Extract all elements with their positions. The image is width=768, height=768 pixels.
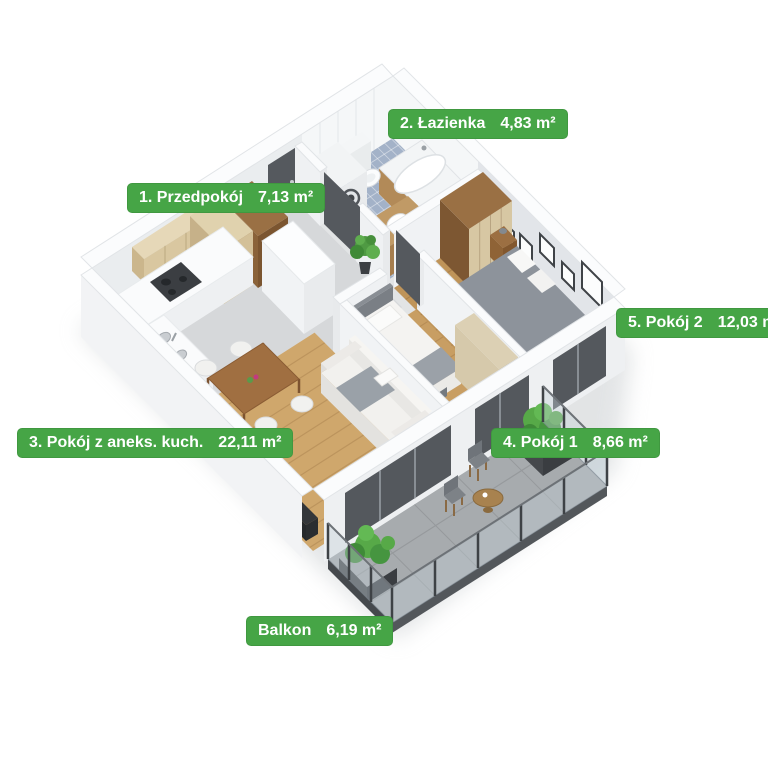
room-label-name: 1. Przedpokój (139, 190, 243, 206)
room-label-area: 6,19 m² (326, 623, 381, 639)
room-label-area: 4,83 m² (500, 116, 555, 132)
room-label-pokoj-1: 4. Pokój 1 8,66 m² (491, 428, 660, 458)
room-label-area: 8,66 m² (593, 435, 648, 451)
room-label-name: 4. Pokój 1 (503, 435, 578, 451)
room-label-lazienka: 2. Łazienka 4,83 m² (388, 109, 568, 139)
room-label-name: Balkon (258, 623, 311, 639)
room-label-name: 5. Pokój 2 (628, 315, 703, 331)
floor-plan-3d-render (0, 0, 768, 768)
room-label-pokoj-z-aneksem: 3. Pokój z aneks. kuch. 22,11 m² (17, 428, 293, 458)
room-label-pokoj-2: 5. Pokój 2 12,03 m² (616, 308, 768, 338)
room-label-area: 7,13 m² (258, 190, 313, 206)
room-label-name: 3. Pokój z aneks. kuch. (29, 435, 203, 451)
floor-plan-page: 1. Przedpokój 7,13 m² 2. Łazienka 4,83 m… (0, 0, 768, 768)
room-label-przedpokoj: 1. Przedpokój 7,13 m² (127, 183, 325, 213)
room-label-area: 22,11 m² (218, 435, 281, 451)
room-label-name: 2. Łazienka (400, 116, 485, 132)
room-label-balkon: Balkon 6,19 m² (246, 616, 393, 646)
room-label-area: 12,03 m² (718, 315, 768, 331)
